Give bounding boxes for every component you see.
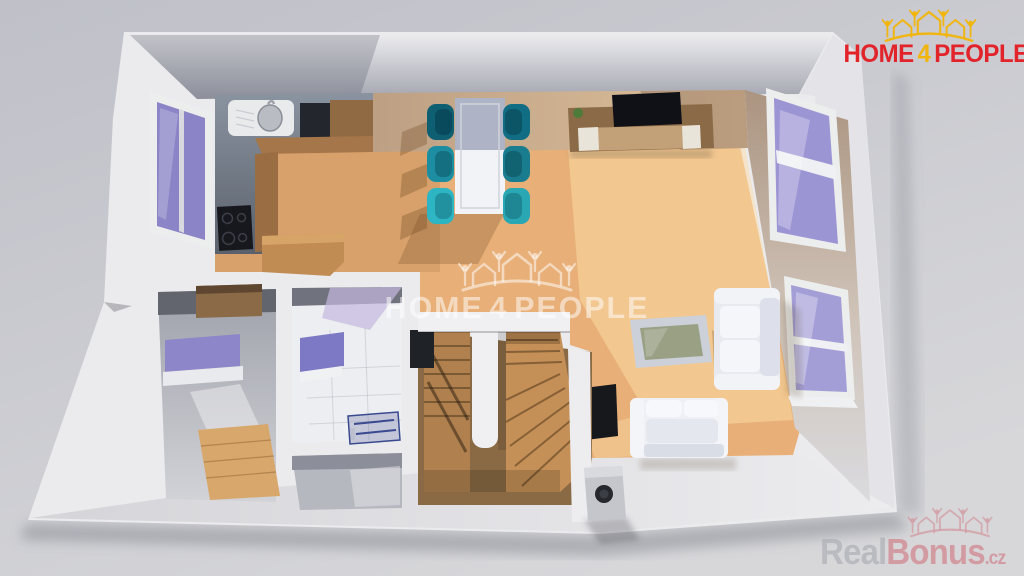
kitchen-island (262, 233, 344, 276)
sofa-horizontal (630, 398, 736, 470)
cooktop (217, 205, 253, 251)
logo-text: HOME4PEOPLE (844, 40, 1015, 69)
kitchen-left-window (150, 92, 212, 248)
floorplan-3d-render (0, 0, 1024, 576)
realbonus-watermark: RealBonus.cz (820, 503, 1024, 573)
sofa-vertical (714, 288, 802, 398)
logo-houses-people-crown-icon (870, 4, 988, 44)
realbonus-word-real: Real (820, 531, 886, 572)
logo-word-4: 4 (917, 40, 930, 68)
realbonus-word-bonus: Bonus (886, 531, 984, 572)
realbonus-word-cz: .cz (985, 548, 1006, 569)
stair-parapet (418, 312, 570, 332)
upper-right-window (766, 88, 846, 252)
logo-word-people: PEOPLE (934, 40, 1024, 68)
dining-table (455, 98, 505, 214)
purple-wall-shelf (165, 334, 240, 372)
bathroom-mirror (300, 332, 344, 372)
wc-room (292, 453, 402, 510)
floorplan-screenshot: HOME4PEOPLE HOME4PEOPLE RealBonus.cz (0, 0, 1024, 576)
upper-cabinet (330, 100, 373, 140)
shower (348, 412, 400, 444)
stairs-divider-wall (472, 322, 506, 450)
cabinet-opening (300, 103, 330, 139)
stair-void (410, 330, 434, 368)
home4people-logo: HOME4PEOPLE (840, 4, 1018, 69)
realbonus-text: RealBonus.cz (820, 531, 1008, 573)
plant (573, 108, 583, 118)
flat-tv (612, 92, 682, 127)
bathroom (292, 287, 402, 444)
counter-wood-front (255, 136, 373, 154)
entry-hall (158, 284, 280, 502)
logo-word-home: HOME (844, 40, 914, 68)
parquet-floor-patch (198, 424, 280, 500)
kitchen-sink (228, 100, 294, 136)
